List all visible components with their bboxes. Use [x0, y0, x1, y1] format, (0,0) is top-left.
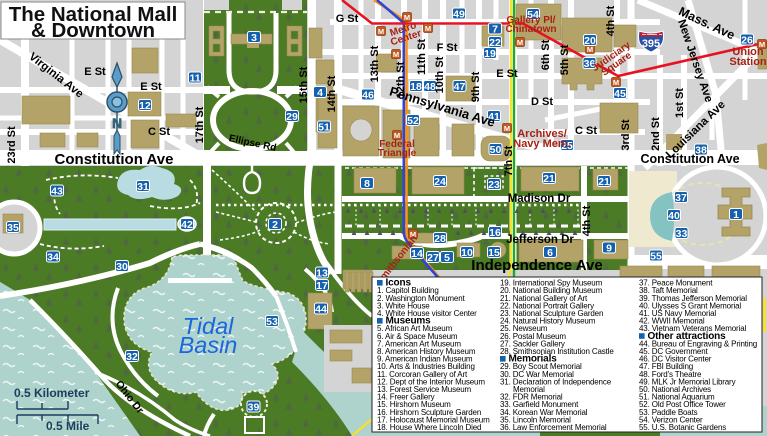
svg-text:F St: F St — [437, 42, 458, 54]
svg-text:Jefferson Dr: Jefferson Dr — [506, 234, 574, 246]
svg-text:3rd St: 3rd St — [620, 119, 632, 151]
svg-text:52: 52 — [407, 115, 419, 127]
svg-text:395: 395 — [642, 38, 660, 50]
svg-text:46: 46 — [362, 89, 374, 101]
svg-text:10th St: 10th St — [434, 56, 446, 93]
svg-text:30: 30 — [116, 261, 128, 273]
svg-text:31: 31 — [137, 181, 149, 193]
svg-text:33: 33 — [676, 228, 688, 240]
svg-text:5: 5 — [444, 252, 450, 264]
svg-text:13: 13 — [316, 267, 328, 279]
svg-text:24: 24 — [434, 176, 446, 188]
svg-text:G St: G St — [336, 13, 359, 25]
svg-text:C St: C St — [575, 125, 597, 137]
svg-text:D St: D St — [531, 96, 553, 108]
svg-text:Constitution Ave: Constitution Ave — [640, 152, 739, 166]
svg-text:M: M — [393, 50, 399, 59]
svg-text:& Downtown: & Downtown — [31, 19, 155, 42]
svg-text:0.5 Mile: 0.5 Mile — [46, 419, 90, 433]
svg-text:19: 19 — [484, 48, 496, 60]
svg-text:M: M — [378, 27, 384, 36]
svg-text:9: 9 — [606, 242, 612, 254]
svg-text:UnionStation: UnionStation — [729, 46, 767, 68]
svg-text:Independence Ave: Independence Ave — [471, 257, 602, 274]
svg-text:20: 20 — [584, 35, 596, 47]
svg-text:Archives/Navy Mem.: Archives/Navy Mem. — [513, 128, 570, 150]
svg-text:E St: E St — [496, 68, 518, 80]
svg-text:22: 22 — [489, 37, 501, 49]
svg-text:55: 55 — [650, 250, 662, 262]
svg-text:14: 14 — [411, 248, 423, 260]
svg-text:26: 26 — [741, 34, 753, 46]
svg-text:C St: C St — [148, 126, 170, 138]
svg-text:37: 37 — [675, 192, 687, 204]
svg-text:1: 1 — [733, 209, 739, 221]
svg-text:8: 8 — [364, 178, 370, 190]
svg-text:1st St: 1st St — [674, 88, 686, 118]
svg-text:M: M — [613, 78, 619, 87]
svg-text:53: 53 — [266, 316, 278, 328]
svg-text:0.5 Kilometer: 0.5 Kilometer — [14, 386, 90, 400]
svg-text:14th St: 14th St — [326, 75, 338, 112]
svg-text:45: 45 — [614, 88, 626, 100]
svg-text:E St: E St — [84, 66, 106, 78]
svg-text:44: 44 — [315, 303, 327, 315]
svg-text:55. U.S. Botanic Gardens: 55. U.S. Botanic Gardens — [639, 423, 726, 432]
svg-text:21: 21 — [543, 173, 555, 185]
svg-text:9th St: 9th St — [470, 71, 482, 102]
svg-text:43: 43 — [51, 185, 63, 197]
svg-text:Madison Dr: Madison Dr — [508, 193, 571, 205]
svg-text:M: M — [517, 38, 523, 47]
svg-text:M: M — [404, 13, 410, 22]
svg-text:11: 11 — [189, 72, 200, 84]
svg-text:13th St: 13th St — [369, 45, 381, 82]
svg-text:N: N — [112, 115, 122, 131]
svg-text:4th St: 4th St — [581, 205, 593, 236]
svg-text:4: 4 — [317, 87, 323, 99]
svg-text:40: 40 — [668, 210, 680, 222]
svg-text:15th St: 15th St — [298, 66, 310, 103]
svg-text:34: 34 — [47, 251, 59, 263]
svg-text:51: 51 — [318, 121, 330, 133]
svg-text:2nd St: 2nd St — [650, 117, 662, 151]
svg-text:7th St: 7th St — [503, 145, 515, 176]
svg-text:23: 23 — [488, 179, 500, 191]
svg-text:27: 27 — [427, 252, 439, 264]
svg-text:2: 2 — [272, 219, 278, 231]
svg-text:Basin: Basin — [179, 332, 238, 358]
svg-text:23rd St: 23rd St — [6, 126, 18, 164]
svg-text:6th St: 6th St — [540, 39, 552, 70]
svg-text:39: 39 — [248, 401, 260, 413]
svg-text:21: 21 — [598, 176, 610, 188]
svg-text:11th St: 11th St — [416, 39, 428, 75]
svg-text:49: 49 — [453, 8, 465, 20]
svg-text:M: M — [425, 24, 431, 33]
svg-text:4th St: 4th St — [605, 5, 617, 36]
svg-text:17: 17 — [316, 280, 328, 292]
svg-text:18. House Where Lincoln Died: 18. House Where Lincoln Died — [377, 423, 481, 432]
svg-text:35: 35 — [7, 222, 19, 234]
svg-text:32: 32 — [126, 351, 138, 363]
svg-text:3: 3 — [251, 32, 257, 44]
svg-text:28: 28 — [434, 233, 446, 245]
svg-text:Constitution Ave: Constitution Ave — [55, 151, 174, 168]
svg-text:16: 16 — [489, 227, 501, 239]
svg-text:47: 47 — [454, 81, 466, 93]
svg-text:FederalTriangle: FederalTriangle — [378, 139, 417, 159]
svg-text:E St: E St — [140, 81, 162, 93]
svg-text:12th St: 12th St — [395, 61, 407, 98]
svg-text:12: 12 — [139, 100, 151, 112]
svg-text:29: 29 — [286, 111, 298, 123]
svg-text:50: 50 — [490, 144, 502, 156]
svg-text:17th St: 17th St — [194, 106, 206, 143]
svg-text:36. Law Enforcement Memorial: 36. Law Enforcement Memorial — [500, 423, 607, 432]
svg-text:42: 42 — [181, 219, 193, 231]
svg-text:M: M — [504, 124, 510, 133]
svg-text:5th St: 5th St — [559, 44, 571, 75]
svg-text:7: 7 — [492, 23, 498, 35]
svg-text:Gallery Pl/Chinatown: Gallery Pl/Chinatown — [505, 15, 556, 35]
